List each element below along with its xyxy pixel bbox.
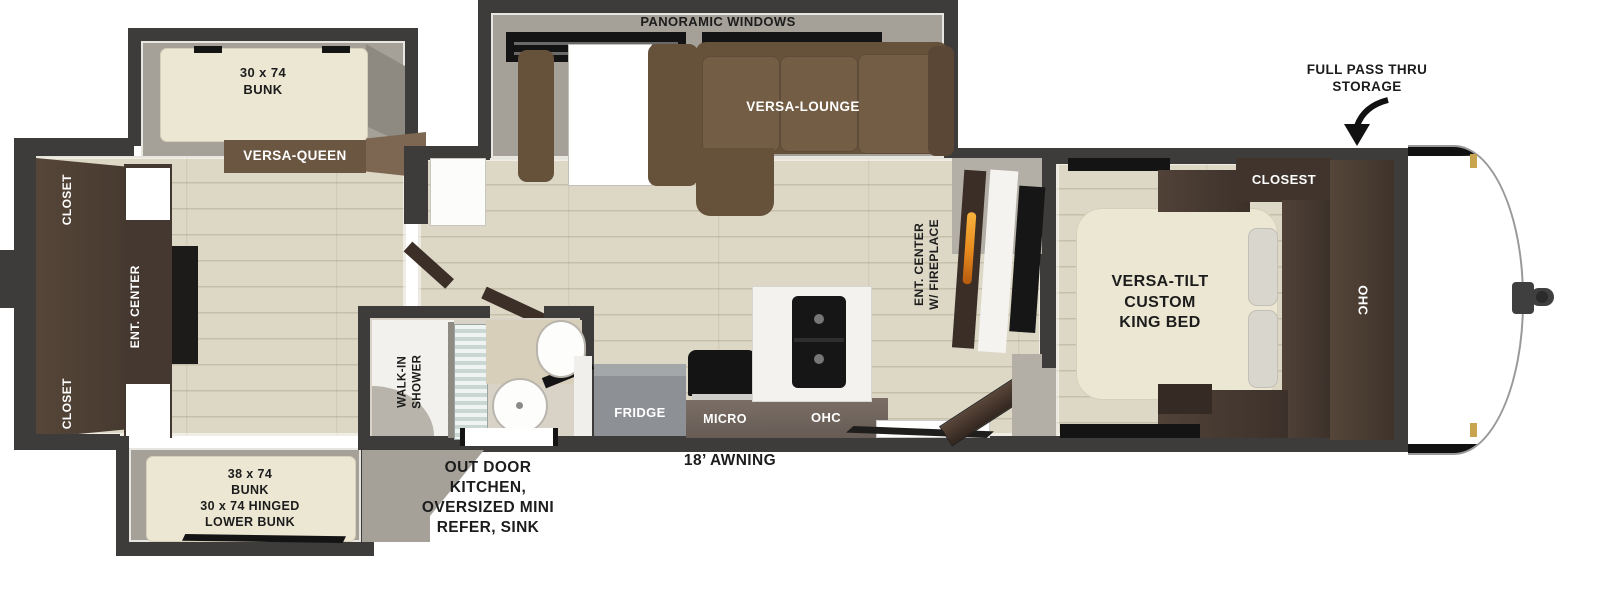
rear-cabinet-door-bottom — [126, 384, 170, 438]
bathroom-wall-left — [358, 306, 370, 450]
stove — [688, 350, 756, 396]
walk-in-shower-label: WALK-INSHOWER — [378, 330, 442, 434]
ent-center-fireplace-label: ENT. CENTERW/ FIREPLACE — [896, 200, 958, 328]
full-pass-thru-arrow — [1330, 96, 1396, 150]
sink-drain — [516, 402, 523, 409]
micro-label: MICRO — [686, 400, 764, 438]
full-pass-thru-label: FULL PASS THRU STORAGE — [1286, 60, 1448, 96]
marker-light-top — [1470, 154, 1477, 168]
bedroom-closet-label: CLOSEST — [1236, 158, 1332, 202]
bedroom-window-top — [1068, 158, 1170, 171]
bedroom-side-column — [1282, 200, 1330, 438]
panoramic-windows-label: PANORAMIC WINDOWS — [578, 14, 858, 30]
hall-cabinet — [430, 158, 486, 226]
floorplan-canvas: 30 x 74BUNK VERSA-QUEEN CLOSET CLOSET EN… — [0, 0, 1600, 591]
sink-basin-drain-1 — [814, 314, 824, 324]
versa-lounge-label: VERSA-LOUNGE — [742, 98, 864, 116]
marker-light-bottom — [1470, 423, 1477, 437]
bedroom-ohc-label: OHC — [1336, 272, 1388, 328]
bedroom-window-bottom — [1060, 424, 1200, 438]
bottom-wall-rear-segment — [14, 434, 120, 450]
kitchen-sink — [792, 296, 846, 388]
rear-closet-bottom-label: CLOSET — [40, 372, 96, 436]
bunk-top-bracket-left — [194, 46, 222, 53]
king-bed-label: VERSA-TILT CUSTOM KING BED — [1090, 272, 1230, 334]
bed-pillow-2 — [1248, 310, 1278, 388]
lounge-slide-wall-top — [478, 0, 958, 13]
entry-wall-return — [1012, 354, 1042, 436]
fridge-label: FRIDGE — [594, 400, 686, 426]
dinette-bench-right — [648, 44, 698, 186]
versa-queen-label: VERSA-QUEEN — [228, 147, 362, 165]
bedroom-divider-lower — [1040, 368, 1056, 436]
rear-bumper — [0, 250, 16, 308]
rear-ent-center-label: ENT. CENTER — [108, 252, 164, 362]
kitchen-counter-end — [574, 356, 592, 436]
outdoor-kitchen-label: OUT DOOR KITCHEN, OVERSIZED MINI REFER, … — [398, 454, 578, 542]
rear-cabinet-door-top — [126, 168, 170, 220]
top-wall-rear-segment — [14, 138, 134, 156]
dinette-bench-left — [518, 50, 554, 182]
bedroom-foot-cabinet-2 — [1158, 384, 1212, 414]
bunk-bottom-label: 38 x 74 BUNK 30 x 74 HINGED LOWER BUNK — [160, 462, 340, 534]
bunk-top-label: 30 x 74BUNK — [200, 64, 326, 100]
bunk-slide-bottom-wall-left — [116, 436, 129, 556]
dinette-table — [568, 44, 652, 186]
bathroom-wall-top-left — [358, 306, 490, 318]
versa-lounge-armrest — [928, 46, 954, 156]
awning-label: 18’ AWNING — [655, 450, 805, 472]
hitch-ball-socket — [1536, 291, 1548, 303]
front-cap — [1408, 145, 1524, 455]
rear-wall — [14, 138, 36, 450]
shower-accordion-door — [454, 324, 488, 440]
front-cap-trim-top — [1408, 147, 1522, 156]
front-cap-trim-bottom — [1408, 444, 1522, 453]
kitchen-sink-divider — [794, 338, 844, 342]
bed-pillow-1 — [1248, 228, 1278, 306]
versa-lounge-chaise — [696, 148, 774, 216]
bunk-top-bracket-right — [322, 46, 350, 53]
bunk-slide-top-wall-left — [128, 28, 141, 146]
lounge-slide-wall-left — [478, 0, 491, 158]
rear-tv — [172, 246, 198, 364]
bath-mat — [460, 428, 558, 446]
sink-basin-drain-2 — [814, 354, 824, 364]
rear-closet-top-label: CLOSET — [40, 168, 96, 232]
hall-wall-stub — [404, 158, 428, 224]
bunk-slide-top-wall-top — [128, 28, 418, 41]
bunk-slide-bottom-wall-bottom — [116, 542, 374, 556]
